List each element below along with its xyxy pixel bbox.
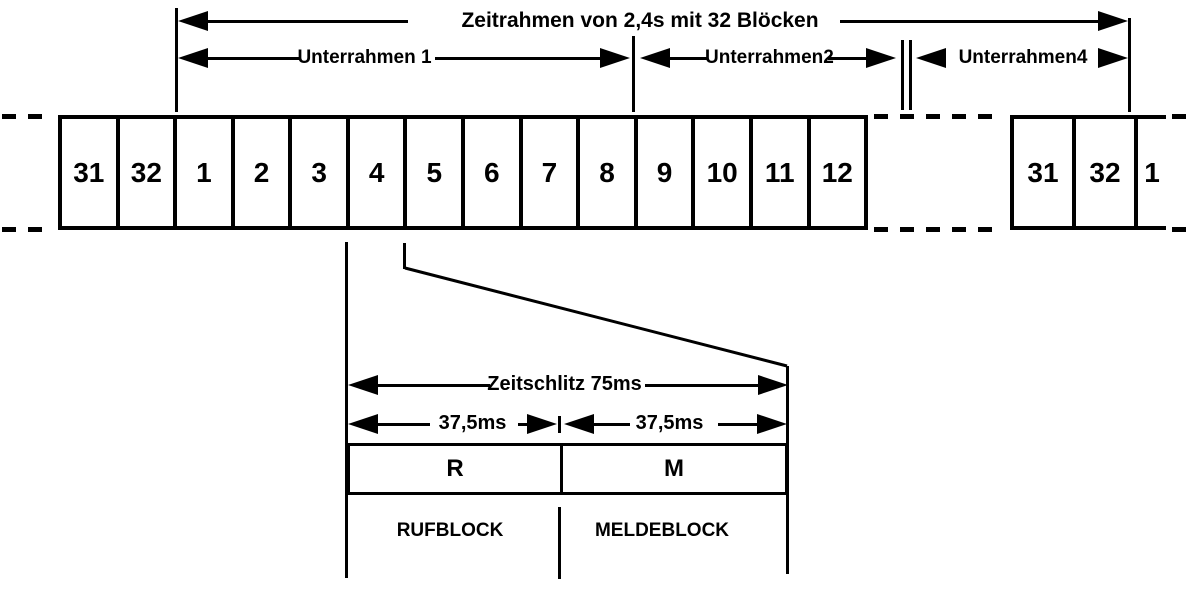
half1-shaft-left bbox=[374, 423, 430, 426]
slot-divider-extension-line bbox=[558, 507, 561, 579]
arrowhead-right-icon bbox=[758, 375, 788, 395]
half1-label: 37,5ms bbox=[425, 412, 520, 435]
slot-box: R M bbox=[347, 443, 788, 495]
meldeblock-label: MELDEBLOCK bbox=[562, 520, 762, 542]
half2-shaft-right bbox=[718, 423, 762, 426]
meldeblock-cell: M bbox=[563, 446, 785, 492]
slot-arrow-shaft-right bbox=[645, 384, 762, 387]
detail-diagonal-connector bbox=[0, 0, 1200, 600]
slot-arrow-shaft-left bbox=[374, 384, 490, 387]
rufblock-cell: R bbox=[350, 446, 563, 492]
timing-diagram: Zeitrahmen von 2,4s mit 32 Blöcken Unter… bbox=[0, 0, 1200, 600]
arrowhead-right-icon bbox=[527, 414, 557, 434]
half-divider-tick bbox=[558, 416, 561, 433]
slot-title: Zeitschlitz 75ms bbox=[487, 373, 642, 396]
rufblock-label: RUFBLOCK bbox=[350, 520, 550, 542]
half2-label: 37,5ms bbox=[622, 412, 717, 435]
arrowhead-right-icon bbox=[757, 414, 787, 434]
